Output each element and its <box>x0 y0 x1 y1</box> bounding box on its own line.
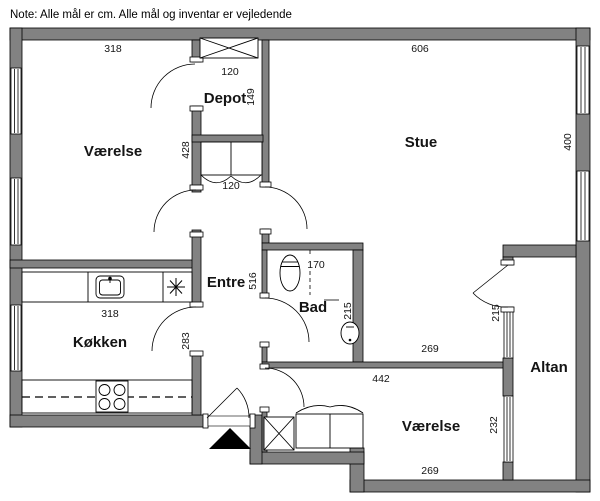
measure-vaerelse-br-height: 232 <box>488 416 500 434</box>
kitchen-counter-bottom <box>22 380 192 413</box>
measure-depot-height: 149 <box>245 88 257 106</box>
measure-passage-width: 269 <box>421 343 439 355</box>
door-post <box>501 260 514 265</box>
measure-vaerelse-br-width-bottom: 269 <box>421 465 439 477</box>
measure-cabinet-width: 120 <box>222 180 240 192</box>
measure-stue-width: 606 <box>411 43 429 55</box>
wall-corridor-west-2 <box>192 106 201 192</box>
door-post <box>190 232 203 237</box>
wardrobe-x-icon <box>264 417 294 450</box>
room-label-depot: Depot <box>204 90 247 107</box>
measure-bad-width: 170 <box>307 259 325 271</box>
door-post <box>260 182 271 187</box>
toilet-icon <box>280 255 300 291</box>
wall-bad-east <box>353 250 363 362</box>
wall-corridor-west-4 <box>192 352 201 415</box>
window-icon <box>11 305 21 371</box>
door-post <box>203 414 208 428</box>
wall-altan-top <box>503 245 576 257</box>
wall-bottom-right <box>350 480 590 492</box>
floor-plan: Note: Alle mål er cm. Alle mål og invent… <box>0 0 600 501</box>
measure-depot-width: 120 <box>221 66 239 78</box>
window-icon <box>504 396 513 462</box>
window-icon <box>11 178 21 245</box>
wall-bottom-left <box>10 415 208 427</box>
washbasin-icon <box>341 322 359 344</box>
measure-vaerelse-tl-width: 318 <box>104 43 122 55</box>
door-post <box>250 414 255 428</box>
measure-vaerelse-br-width-top: 442 <box>372 373 390 385</box>
wall-altan-west-4 <box>503 462 513 480</box>
wall-vaerelse-br-top <box>262 362 505 368</box>
door-post <box>501 307 514 312</box>
measure-altan-door: 215 <box>490 304 502 322</box>
wall-corridor-east <box>262 40 269 187</box>
window-icon <box>577 46 589 114</box>
room-label-entre: Entre <box>207 274 245 291</box>
wall-top <box>10 28 590 40</box>
measure-stue-height: 400 <box>562 133 574 151</box>
door-post <box>260 229 271 234</box>
kitchen-sink-icon <box>96 276 124 298</box>
door-post <box>190 106 203 111</box>
measure-koekken-height: 283 <box>180 332 192 350</box>
wall-bad-west-1 <box>262 250 267 298</box>
note-text: Note: Alle mål er cm. Alle mål og invent… <box>10 9 292 21</box>
door-post <box>190 185 203 190</box>
room-label-altan: Altan <box>530 359 568 376</box>
wall-bad-top <box>262 243 363 250</box>
measure-entre-length: 516 <box>247 272 259 290</box>
window-icon <box>11 68 21 134</box>
door-post <box>190 302 203 307</box>
door-post <box>260 293 269 298</box>
measure-bad-height: 215 <box>342 302 354 320</box>
floor-plan-page: Note: Alle mål er cm. Alle mål og invent… <box>0 0 600 501</box>
kitchen-counter-top <box>22 272 192 302</box>
room-label-stue: Stue <box>405 134 438 151</box>
wall-vaerelse-koekken <box>10 260 200 268</box>
measure-koekken-width: 318 <box>101 308 119 320</box>
room-label-bad: Bad <box>299 299 327 316</box>
wall-altan-west-3 <box>503 358 513 396</box>
wall-corridor-west-3 <box>192 230 201 307</box>
room-label-vaerelse-br: Værelse <box>402 418 460 435</box>
door-post <box>260 407 269 412</box>
wall-bottom-mid <box>250 452 364 464</box>
window-icon <box>577 171 589 241</box>
entrance-threshold <box>208 416 250 426</box>
cooktop-icon <box>96 381 128 412</box>
measure-vaerelse-tl-height: 428 <box>180 141 192 159</box>
wall-depot-bottom <box>192 135 263 142</box>
room-label-koekken: Køkken <box>73 334 127 351</box>
wardrobe-x-icon <box>200 38 258 58</box>
door-post <box>190 351 203 356</box>
room-label-vaerelse-tl: Værelse <box>84 143 142 160</box>
door-post <box>260 342 269 347</box>
window-icon <box>504 311 513 358</box>
